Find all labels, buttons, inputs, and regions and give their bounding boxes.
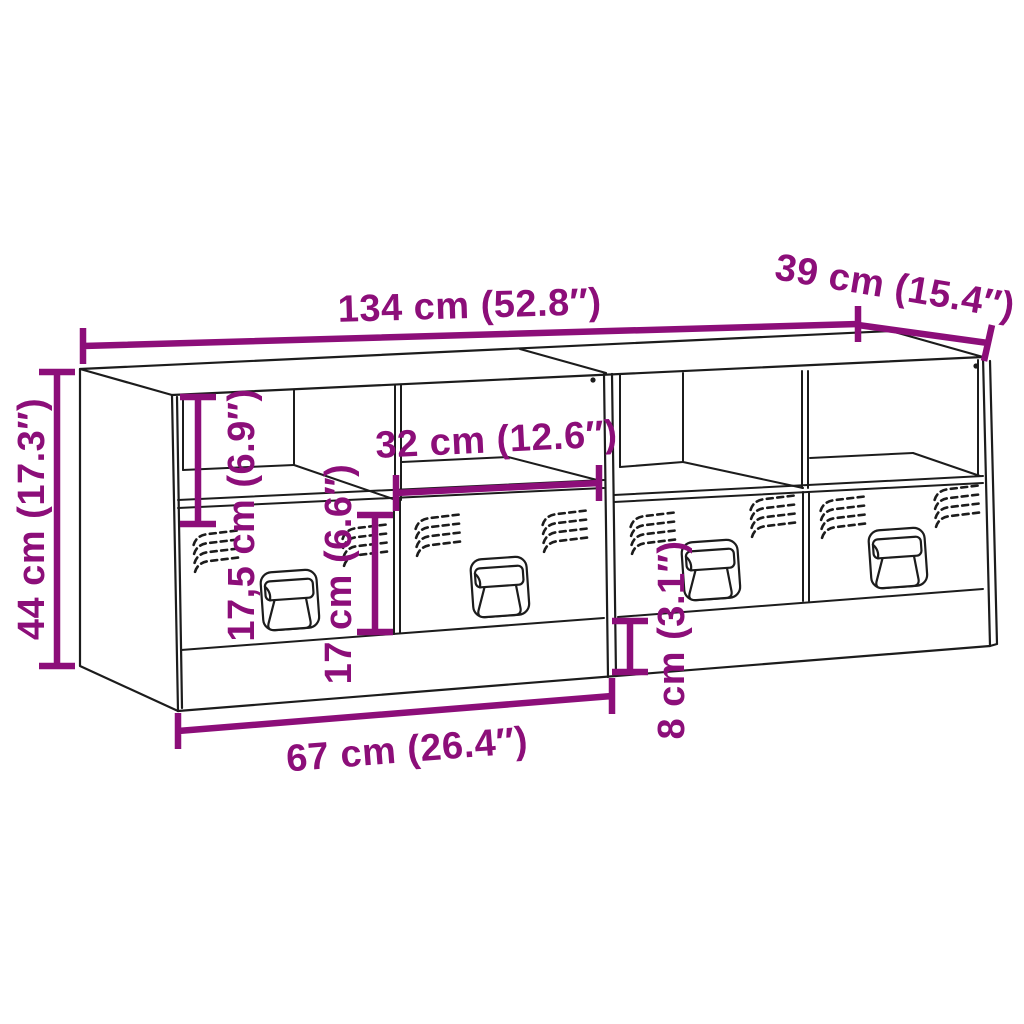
dim-line-depth bbox=[858, 325, 992, 361]
dim-label-shelf-height: 17,5 cm (6.9″) bbox=[221, 388, 263, 641]
screw-dot-left bbox=[590, 377, 595, 382]
shelf-divider bbox=[683, 371, 808, 488]
cabinet-carcass bbox=[80, 331, 997, 711]
right-edge bbox=[983, 357, 997, 646]
dim-label-unit-width: 67 cm (26.4″) bbox=[285, 720, 530, 781]
vent-slats bbox=[542, 511, 588, 552]
right-unit-shelves bbox=[614, 360, 983, 502]
dim-label-drawer-height: 17 cm (6.6″) bbox=[318, 464, 360, 685]
right-wall-diagonal bbox=[913, 360, 980, 476]
right-wall-diagonal bbox=[508, 457, 601, 481]
dim-line-base-height bbox=[612, 621, 648, 672]
vent-slats bbox=[820, 497, 866, 538]
dim-label-total-width: 134 cm (52.8″) bbox=[337, 281, 602, 331]
drawer-handle bbox=[470, 556, 530, 618]
shelf-front-lip bbox=[614, 476, 983, 502]
dim-line-drawer-height bbox=[357, 515, 393, 632]
left-side-panel bbox=[80, 369, 178, 711]
dim-label-shelf-width: 32 cm (12.6″) bbox=[374, 413, 618, 467]
vent-slats bbox=[934, 486, 980, 527]
drawer-handle bbox=[868, 527, 928, 589]
cabinet-drawing bbox=[80, 331, 997, 711]
dim-line-shelf-height bbox=[180, 397, 216, 524]
vent-slats bbox=[415, 515, 461, 556]
dim-label-total-height: 44 cm (17.3″) bbox=[11, 398, 53, 640]
dim-label-depth: 39 cm (15.4″) bbox=[772, 246, 1018, 327]
shelf-floor-back-edge bbox=[620, 453, 913, 467]
vent-slats bbox=[750, 496, 796, 537]
drawer-handle bbox=[260, 569, 320, 631]
front-left-edge bbox=[172, 395, 182, 711]
dim-label-base-height: 8 cm (3.1″) bbox=[651, 540, 693, 739]
drawer-seam bbox=[803, 492, 809, 601]
drawer-seam bbox=[394, 498, 400, 634]
top-seam-line bbox=[520, 349, 606, 373]
dimension-diagram: 134 cm (52.8″) 39 cm (15.4″) 44 cm (17.3… bbox=[0, 0, 1024, 1024]
